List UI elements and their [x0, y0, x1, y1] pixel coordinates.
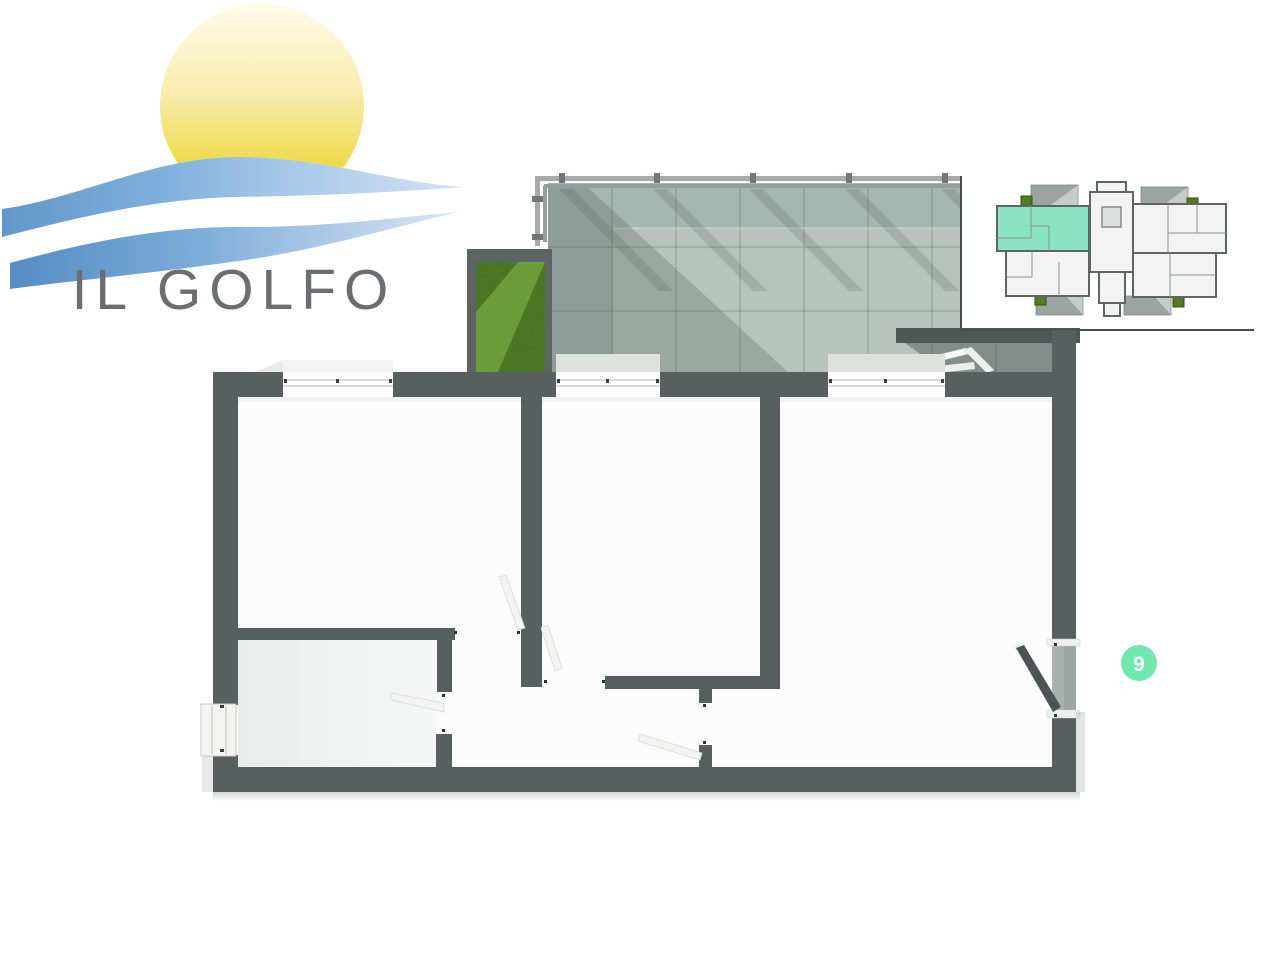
wall-interior-h1 [238, 628, 455, 640]
wall-interior-stub [699, 689, 712, 703]
floorplan-graphic: IL GOLFO [0, 0, 1280, 960]
railing-outer-rail [535, 176, 960, 181]
wall-interior-stub [436, 734, 452, 767]
apartment-plan [201, 330, 1085, 801]
shadow-below [213, 792, 1080, 801]
french-door [201, 704, 238, 756]
window-3 [828, 354, 945, 397]
logo-title: IL GOLFO [72, 258, 397, 322]
railing-inner-rail [544, 184, 960, 188]
wall-interior-stub [437, 640, 452, 692]
minimap-core-stem [1099, 272, 1125, 303]
minimap-apartment [1006, 251, 1089, 296]
wall-interior-v1 [521, 397, 542, 687]
minimap-border-left [960, 176, 962, 330]
badge-number: 9 [1133, 653, 1145, 676]
grass-planter [467, 249, 552, 375]
shadow-right [1076, 712, 1085, 792]
unit-number-badge[interactable]: 9 [1121, 645, 1157, 681]
window-2 [556, 354, 660, 397]
minimap-apartment [1133, 204, 1226, 253]
wall-interior-h2 [605, 676, 780, 689]
minimap-highlighted-unit[interactable] [997, 206, 1089, 251]
logo: IL GOLFO [0, 4, 470, 340]
minimap-elevator [1102, 207, 1121, 227]
top-wall-inner-shadow [238, 397, 1052, 402]
minimap-core [1090, 192, 1133, 272]
entrance-sill [1047, 639, 1080, 646]
minimap-core-top [1097, 182, 1126, 192]
minimap-overview [960, 96, 1280, 331]
entrance-sill [1047, 710, 1080, 718]
page: IL GOLFO [0, 0, 1280, 960]
wall-interior-v2 [760, 397, 780, 677]
wall-bottom [213, 767, 1076, 792]
minimap-border-bottom [960, 329, 1254, 331]
railing-inner-rail [543, 186, 547, 242]
planter-grass-texture [476, 262, 545, 372]
wall-right [1052, 330, 1076, 792]
shadow-left [202, 756, 213, 792]
minimap-core-stem [1104, 303, 1120, 316]
